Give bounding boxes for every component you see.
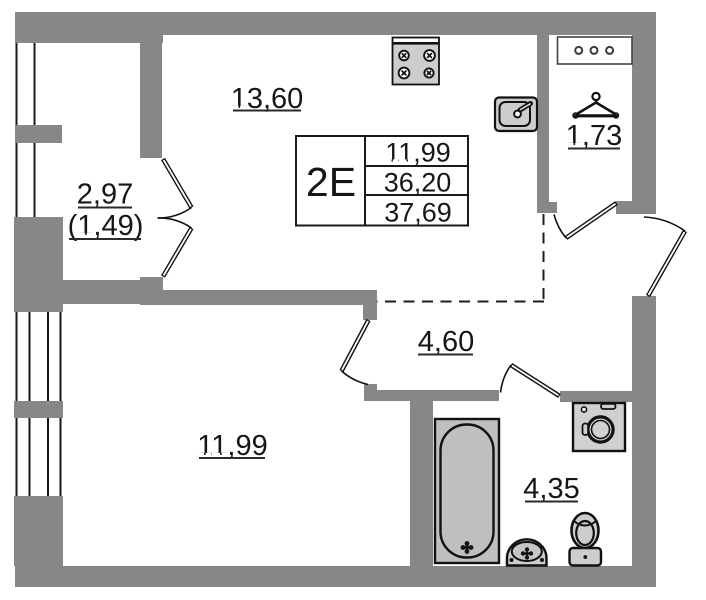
svg-text:37,69: 37,69	[384, 198, 452, 228]
svg-text:4,35: 4,35	[523, 473, 579, 505]
svg-text:2,97: 2,97	[77, 179, 133, 211]
svg-text:11,99: 11,99	[385, 138, 451, 168]
svg-text:4,60: 4,60	[418, 326, 474, 358]
svg-text:36,20: 36,20	[384, 168, 452, 198]
svg-text:(1,49): (1,49)	[68, 210, 144, 242]
svg-text:1,73: 1,73	[566, 120, 622, 152]
svg-text:2E: 2E	[306, 159, 356, 205]
